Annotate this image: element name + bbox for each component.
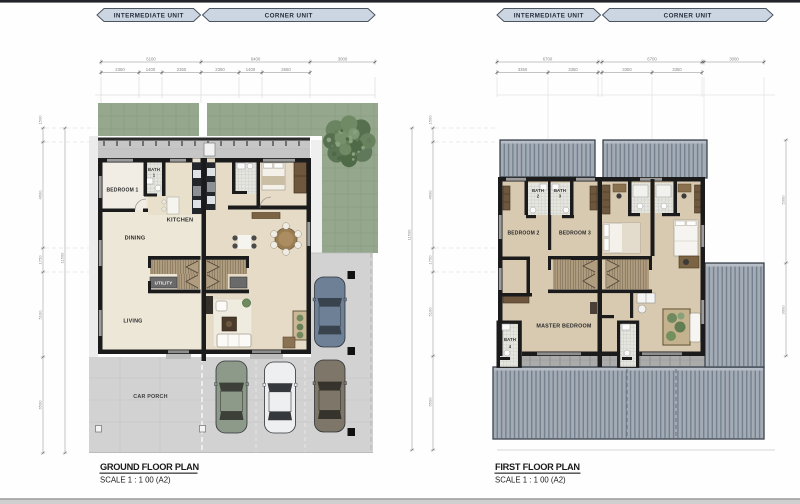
svg-text:1400: 1400 [246,67,256,72]
svg-text:6700: 6700 [647,57,657,62]
svg-text:2650: 2650 [281,67,291,72]
svg-text:1750: 1750 [38,255,43,265]
svg-text:1400: 1400 [146,67,156,72]
svg-text:SCALE 1 : 1 00 (A2): SCALE 1 : 1 00 (A2) [495,476,566,485]
svg-text:BATH: BATH [148,167,160,172]
svg-text:BATH: BATH [532,188,544,193]
svg-text:2350: 2350 [177,67,187,72]
svg-text:5100: 5100 [38,310,43,320]
svg-text:CAR PORCH: CAR PORCH [133,394,167,400]
svg-text:DINING: DINING [125,236,146,242]
svg-text:1750: 1750 [428,255,433,265]
svg-text:3350: 3350 [568,67,578,72]
svg-text:1500: 1500 [38,115,43,125]
svg-text:BATH: BATH [504,337,516,342]
svg-text:3350: 3350 [622,67,632,72]
svg-text:KITCHEN: KITCHEN [167,218,194,224]
svg-text:FIRST FLOOR PLAN: FIRST FLOOR PLAN [495,462,580,472]
svg-text:UTILITY: UTILITY [155,281,173,286]
svg-text:MASTER BEDROOM: MASTER BEDROOM [536,324,592,330]
svg-text:BEDROOM 3: BEDROOM 3 [559,231,591,237]
svg-text:5100: 5100 [428,307,433,317]
svg-text:BEDROOM 1: BEDROOM 1 [106,188,138,194]
svg-text:6100: 6100 [146,57,156,62]
svg-text:1500: 1500 [428,115,433,125]
svg-text:4600: 4600 [38,190,43,200]
svg-text:CORNER UNIT: CORNER UNIT [265,12,313,19]
svg-text:3350: 3350 [672,67,682,72]
svg-text:LIVING: LIVING [123,319,142,325]
svg-text:6700: 6700 [543,57,553,62]
svg-text:3000: 3000 [729,57,739,62]
svg-text:SCALE 1 : 1 00 (A2): SCALE 1 : 1 00 (A2) [100,476,171,485]
svg-text:2350: 2350 [215,67,225,72]
svg-text:BEDROOM 2: BEDROOM 2 [507,231,539,237]
svg-text:11500: 11500 [407,229,412,241]
svg-text:6500: 6500 [428,397,433,407]
svg-text:INTERMEDIATE UNIT: INTERMEDIATE UNIT [514,12,584,19]
svg-text:3350: 3350 [518,67,528,72]
svg-text:2350: 2350 [115,67,125,72]
svg-text:INTERMEDIATE UNIT: INTERMEDIATE UNIT [114,12,184,19]
svg-text:GROUND FLOOR PLAN: GROUND FLOOR PLAN [100,462,199,472]
svg-text:6400: 6400 [251,57,261,62]
svg-text:CORNER UNIT: CORNER UNIT [664,12,712,19]
svg-text:3000: 3000 [781,305,786,315]
svg-text:4600: 4600 [428,190,433,200]
svg-text:BATH: BATH [554,188,566,193]
svg-text:5300: 5300 [781,195,786,205]
svg-text:11500: 11500 [60,252,65,264]
svg-text:3000: 3000 [338,57,348,62]
svg-text:6500: 6500 [38,400,43,410]
